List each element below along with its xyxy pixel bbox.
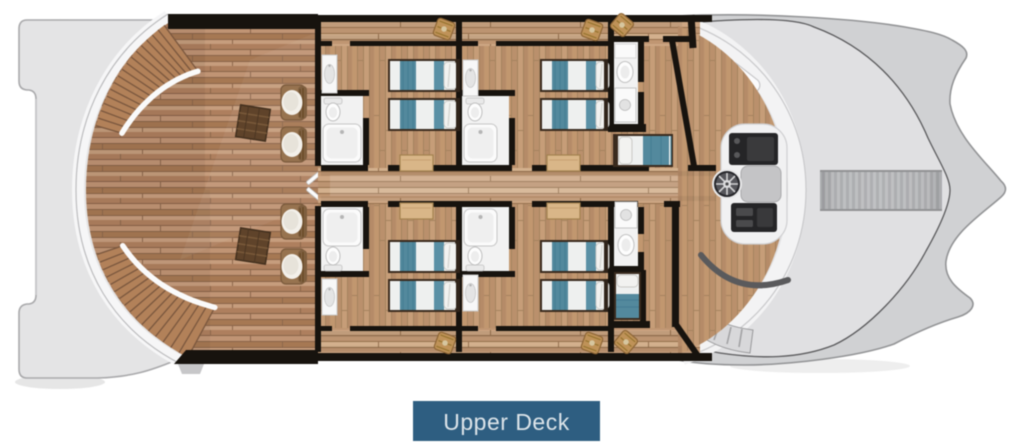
svg-text:Upper Deck: Upper Deck — [443, 409, 569, 435]
